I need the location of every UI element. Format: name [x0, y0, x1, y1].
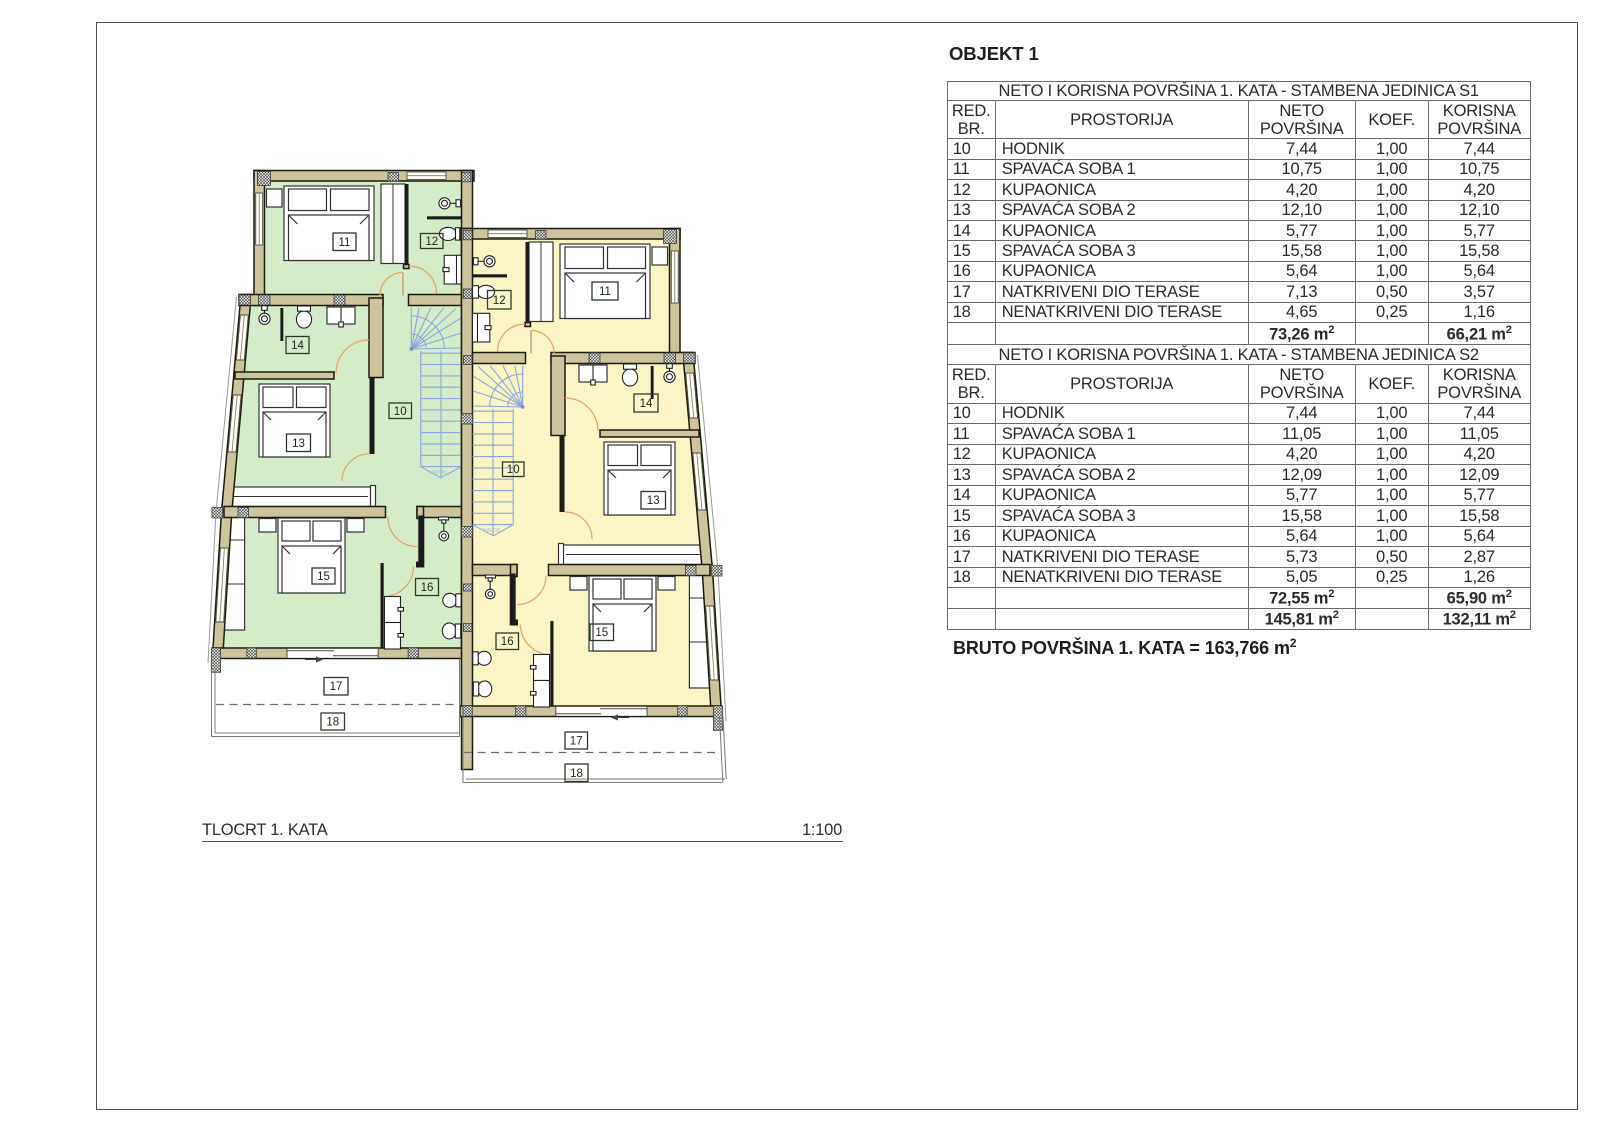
svg-text:10: 10: [507, 464, 520, 476]
svg-text:13: 13: [647, 495, 660, 507]
svg-text:17: 17: [330, 681, 343, 693]
svg-text:18: 18: [570, 768, 583, 780]
svg-text:18: 18: [326, 717, 339, 729]
svg-text:13: 13: [292, 438, 305, 450]
svg-text:12: 12: [493, 295, 506, 307]
svg-text:12: 12: [425, 236, 438, 248]
svg-text:14: 14: [640, 398, 653, 410]
svg-text:16: 16: [501, 636, 514, 648]
svg-text:15: 15: [595, 627, 608, 639]
svg-text:NAVOD: NAVOD: [483, 528, 501, 534]
svg-text:16: 16: [421, 582, 434, 594]
svg-text:15: 15: [317, 571, 330, 583]
svg-text:11: 11: [599, 286, 611, 298]
svg-text:14: 14: [291, 340, 304, 352]
svg-text:NAVOD: NAVOD: [429, 470, 447, 476]
svg-text:17: 17: [570, 736, 583, 748]
svg-text:10: 10: [394, 406, 407, 418]
svg-text:11: 11: [339, 237, 351, 249]
